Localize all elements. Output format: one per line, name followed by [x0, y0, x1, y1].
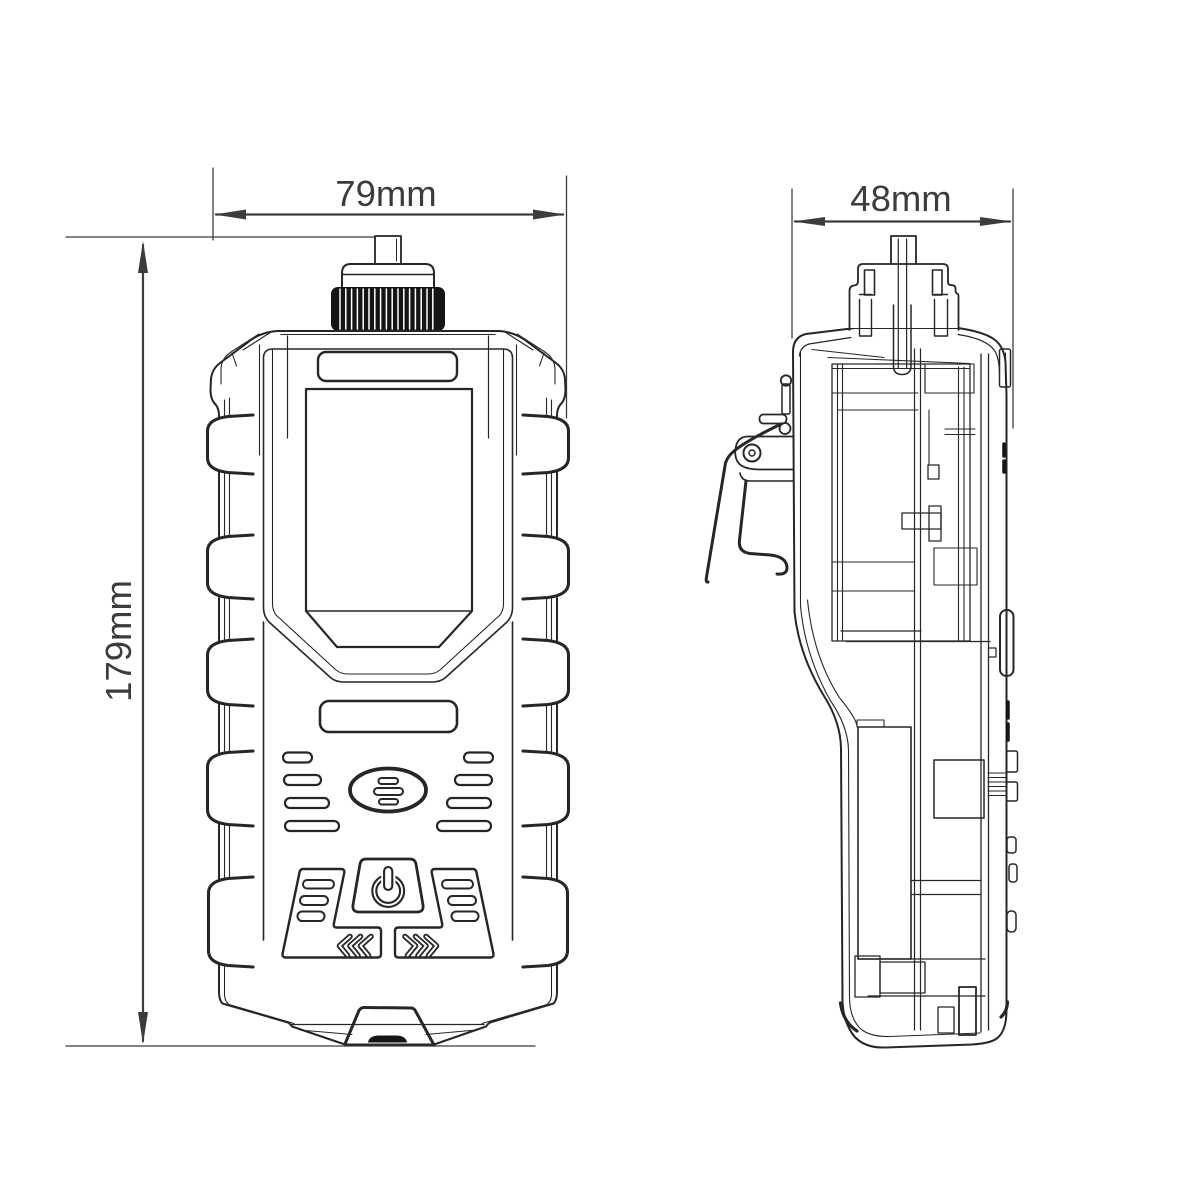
- svg-text:48mm: 48mm: [850, 178, 951, 219]
- svg-text:79mm: 79mm: [335, 173, 436, 214]
- svg-text:179mm: 179mm: [98, 580, 139, 702]
